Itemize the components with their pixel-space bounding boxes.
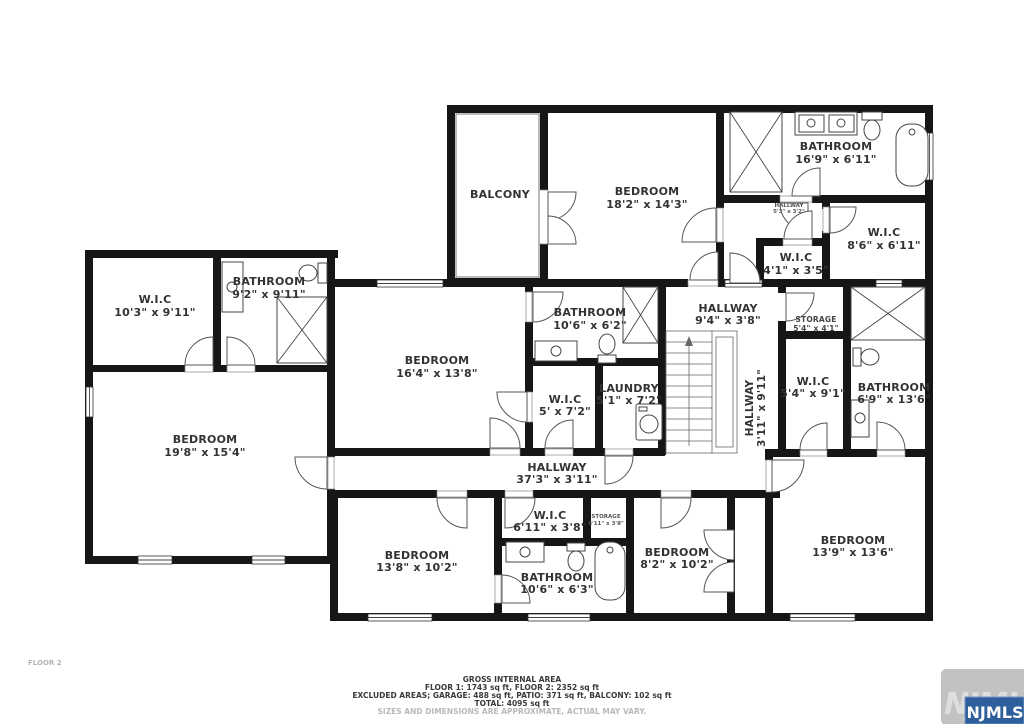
- room-dims-bathroom-2: 9'2" x 9'11": [232, 288, 306, 301]
- room-dims-hallway-small: 5'3" x 3'2": [773, 209, 805, 215]
- room-label-bedroom-1: BEDROOM: [615, 185, 680, 198]
- shower-icon: [851, 287, 925, 340]
- toilet-icon: [853, 348, 879, 366]
- room-dims-bedroom-6: 13'9" x 13'6": [812, 546, 893, 559]
- room-dims-storage-2: 6'11" x 3'8": [588, 521, 624, 527]
- shower-icon: [277, 297, 327, 363]
- room-label-storage-1: STORAGE: [795, 315, 836, 324]
- sink-icon: [506, 542, 544, 562]
- room-dims-bedroom-1: 18'2" x 14'3": [606, 198, 687, 211]
- njmls-logo: NJMLS NJMLS: [941, 669, 1024, 724]
- room-dims-bathroom-1: 16'9" x 6'11": [795, 153, 876, 166]
- room-label-bedroom-3: BEDROOM: [405, 354, 470, 367]
- double-sink-icon: [795, 112, 857, 135]
- washer-icon: [636, 404, 662, 440]
- room-label-bathroom-1: BATHROOM: [800, 140, 872, 153]
- room-dims-laundry: 5'1" x 7'2": [596, 394, 662, 407]
- svg-text:3'11" x 9'11": 3'11" x 9'11": [756, 369, 768, 447]
- area-summary: GROSS INTERNAL AREA FLOOR 1: 1743 sq ft,…: [352, 675, 672, 716]
- room-dims-wic-3: 10'3" x 9'11": [114, 306, 195, 319]
- floor-plan: BALCONY BEDROOM 18'2" x 14'3" BATHROOM 1…: [0, 0, 1024, 724]
- room-dims-bedroom-4: 13'8" x 10'2": [376, 561, 457, 574]
- shower-icon: [623, 287, 658, 343]
- room-label-bathroom-2: BATHROOM: [233, 275, 305, 288]
- room-dims-wic-2: 4'1" x 3'5": [763, 264, 829, 277]
- bathtub-icon: [896, 124, 928, 186]
- room-dims-wic-6: 6'11" x 3'8": [513, 521, 587, 534]
- room-label-wic-1: W.I.C: [868, 226, 901, 239]
- room-dims-bathroom-3: 10'6" x 6'2": [553, 319, 627, 332]
- room-dims-wic-5: 5'4" x 9'1": [780, 387, 846, 400]
- room-dims-wic-1: 8'6" x 6'11": [847, 239, 921, 252]
- room-label-bathroom-3: BATHROOM: [554, 306, 626, 319]
- floor-label: FLOOR 2: [28, 659, 62, 667]
- bathtub-icon: [595, 542, 625, 600]
- svg-text:HALLWAY: HALLWAY: [744, 379, 756, 436]
- room-dims-hallway-upper: 9'4" x 3'8": [695, 314, 761, 327]
- toilet-icon: [862, 112, 882, 140]
- sink-icon: [535, 341, 577, 361]
- room-dims-bedroom-5: 8'2" x 10'2": [640, 558, 714, 571]
- room-dims-wic-4: 5' x 7'2": [539, 405, 591, 418]
- toilet-icon: [598, 334, 616, 363]
- toilet-icon: [567, 543, 585, 571]
- room-dims-bedroom-3: 16'4" x 13'8": [396, 367, 477, 380]
- room-dims-bedroom-2: 19'8" x 15'4": [164, 446, 245, 459]
- shower-icon: [730, 112, 782, 192]
- room-dims-hallway-main: 37'3" x 3'11": [516, 473, 597, 486]
- staircase: [666, 331, 737, 453]
- floor-plan-page: BALCONY BEDROOM 18'2" x 14'3" BATHROOM 1…: [0, 0, 1024, 724]
- room-label-hallway-vertical: HALLWAY 3'11" x 9'11": [744, 369, 768, 447]
- stairs-up-arrow: [685, 336, 693, 346]
- room-label-balcony: BALCONY: [470, 188, 531, 201]
- room-label-wic-3: W.I.C: [139, 293, 172, 306]
- room-dims-bathroom-5: 10'6" x 6'3": [520, 583, 594, 596]
- disclaimer: SIZES AND DIMENSIONS ARE APPROXIMATE, AC…: [378, 707, 647, 716]
- room-label-bedroom-2: BEDROOM: [173, 433, 238, 446]
- room-label-storage-2: STORAGE: [591, 514, 620, 520]
- room-label-wic-2: W.I.C: [780, 251, 813, 264]
- room-dims-storage-1: 5'4" x 4'1": [793, 324, 839, 333]
- njmls-logo-text: NJMLS: [967, 703, 1024, 722]
- room-dims-bathroom-4: 6'9" x 13'6": [857, 393, 931, 406]
